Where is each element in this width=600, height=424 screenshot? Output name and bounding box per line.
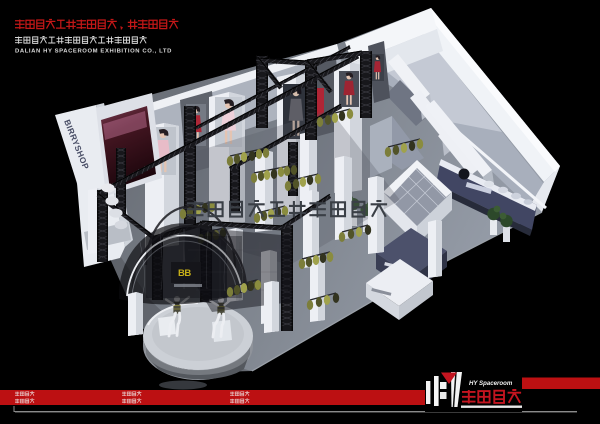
svg-text:DALIAN HY SPACEROOM EXHIBITION: DALIAN HY SPACEROOM EXHIBITION CO., LTD xyxy=(15,49,172,55)
svg-text:BB: BB xyxy=(178,268,191,279)
svg-text:HY Spaceroom: HY Spaceroom xyxy=(469,380,513,387)
